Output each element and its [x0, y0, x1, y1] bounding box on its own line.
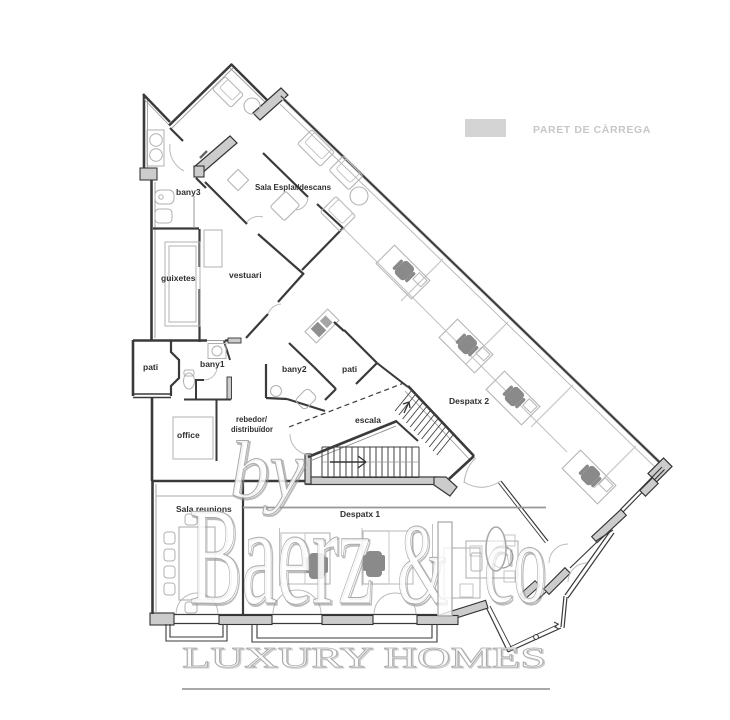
svg-text:rebedor/: rebedor/ — [236, 414, 268, 424]
svg-text:Despatx 2: Despatx 2 — [449, 396, 489, 406]
svg-text:escala: escala — [355, 415, 381, 425]
svg-text:Sala Esplai/descans: Sala Esplai/descans — [255, 182, 331, 192]
svg-text:bany3: bany3 — [176, 187, 201, 197]
svg-text:pati: pati — [143, 362, 158, 372]
svg-text:guixetes: guixetes — [161, 273, 196, 283]
svg-text:Baerz: Baerz — [189, 479, 373, 634]
svg-text:pati: pati — [342, 364, 357, 374]
svg-text:PARET DE CÀRREGA: PARET DE CÀRREGA — [533, 123, 651, 136]
svg-text:vestuari: vestuari — [229, 270, 262, 280]
svg-text:LUXURY HOMES: LUXURY HOMES — [182, 643, 546, 674]
svg-text:bany1: bany1 — [200, 359, 225, 369]
svg-text:office: office — [177, 430, 200, 440]
svg-text:bany2: bany2 — [282, 364, 307, 374]
